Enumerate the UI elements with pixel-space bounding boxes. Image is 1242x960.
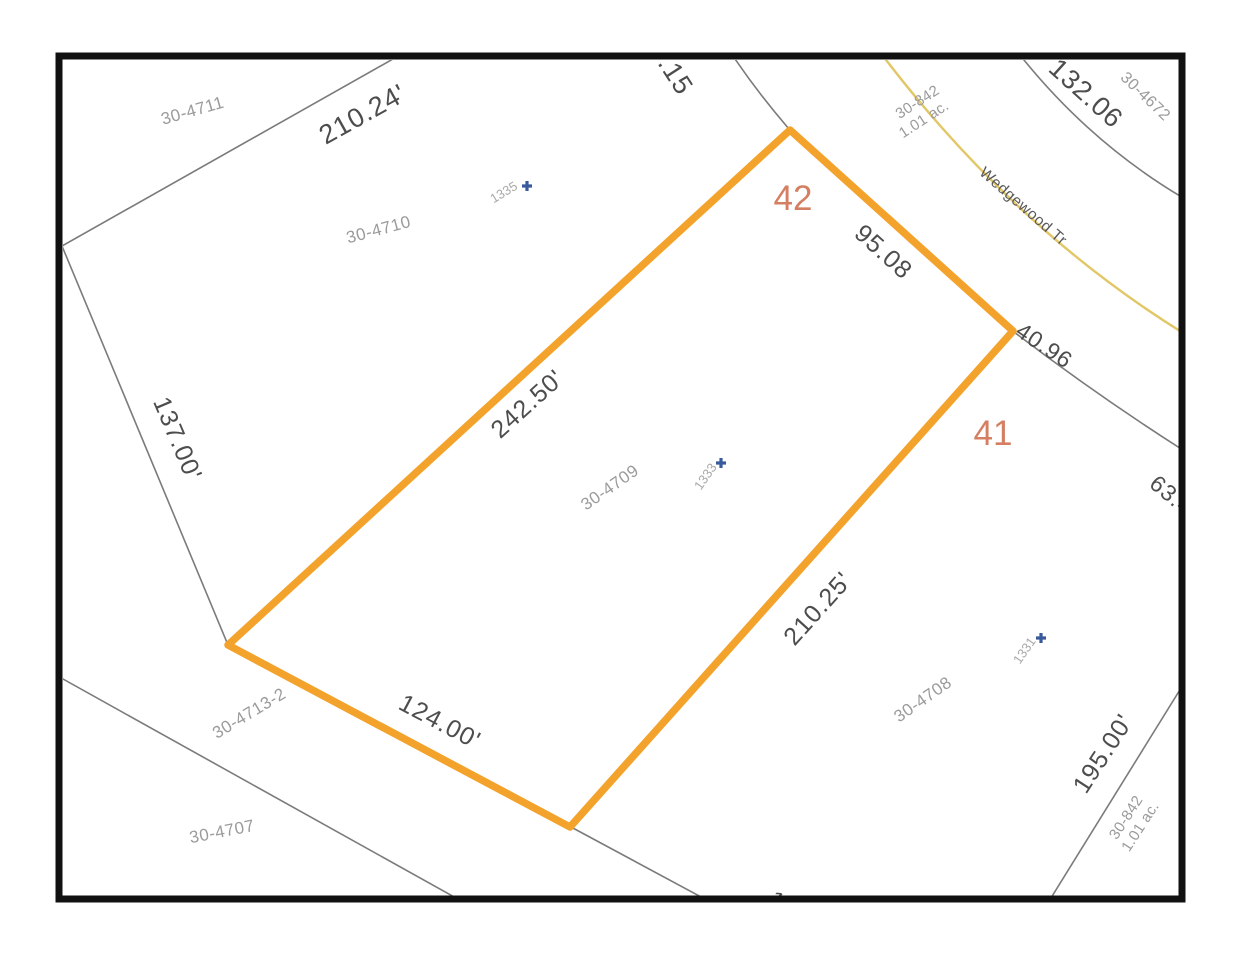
map-canvas[interactable]: 210.24' .15 132.06 137.00' 242.50' 95.08… xyxy=(0,0,1242,960)
lot-number-41: 41 xyxy=(974,414,1013,453)
plat-map-page: 210.24' .15 132.06 137.00' 242.50' 95.08… xyxy=(0,0,1242,960)
lot-number-42: 42 xyxy=(774,179,813,218)
